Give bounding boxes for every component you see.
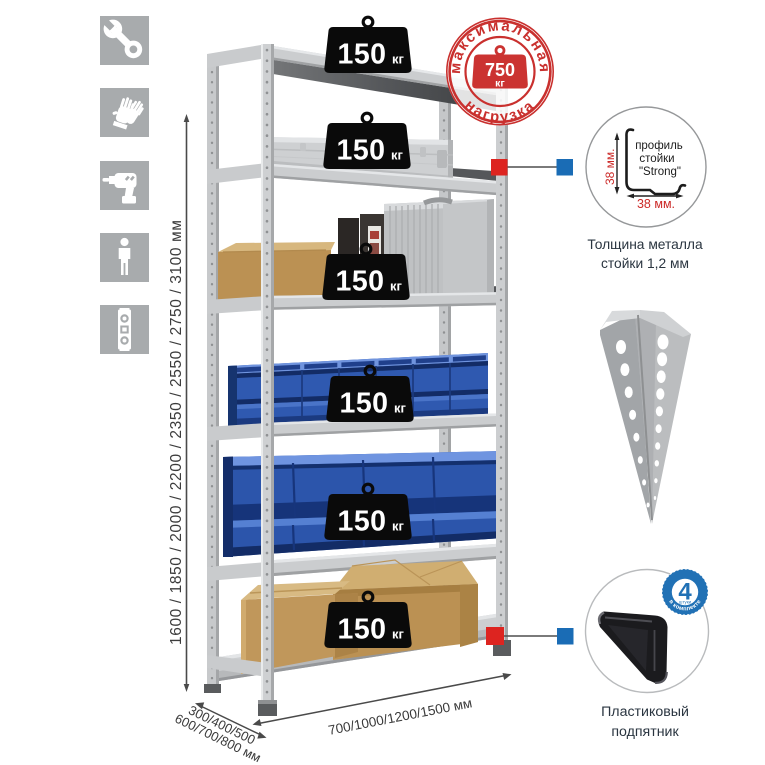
svg-text:подпятник: подпятник bbox=[611, 724, 679, 740]
svg-text:кг: кг bbox=[495, 78, 505, 90]
svg-text:Толщина металла: Толщина металла bbox=[587, 237, 703, 252]
svg-text:38 мм.: 38 мм. bbox=[603, 148, 617, 185]
svg-text:Пластиковый: Пластиковый bbox=[601, 704, 689, 720]
svg-text:профиль: профиль bbox=[635, 140, 683, 152]
svg-text:стойки 1,2 мм: стойки 1,2 мм bbox=[601, 256, 689, 271]
svg-text:"Strong": "Strong" bbox=[639, 166, 681, 178]
svg-text:стойки: стойки bbox=[639, 153, 674, 165]
svg-text:38 мм.: 38 мм. bbox=[637, 197, 675, 211]
svg-text:1600 / 1850 / 2000 / 2200 / 23: 1600 / 1850 / 2000 / 2200 / 2350 / 2550 … bbox=[168, 219, 185, 645]
svg-text:штуки: штуки bbox=[679, 600, 692, 605]
